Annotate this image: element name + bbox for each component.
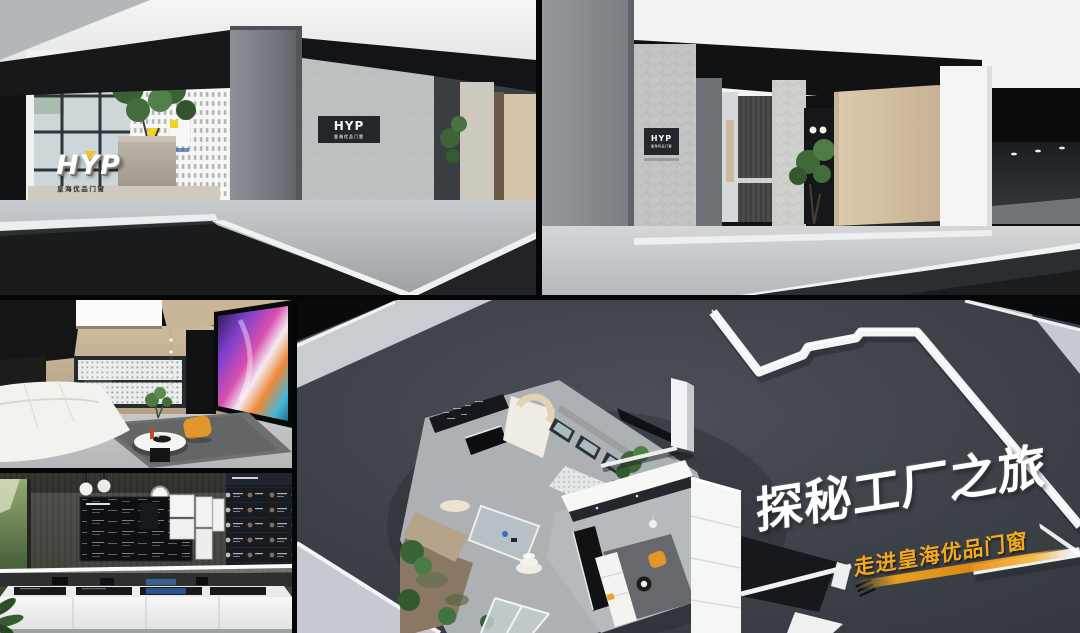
brand-logo-3d: HYP 皇海优品门窗 xyxy=(54,152,204,202)
entrance-render-right: HYP 皇海优品门窗 xyxy=(542,0,1080,295)
product-display-render xyxy=(0,473,292,633)
showroom-collage: HYP 皇海优品门窗 HYP 皇海优品门窗 xyxy=(0,0,1080,633)
brand-logo-subtext: 皇海优品门窗 xyxy=(57,183,106,193)
entrance-left-scene xyxy=(0,0,536,295)
wall-sign-left: HYP 皇海优品门窗 xyxy=(318,116,380,143)
floor-plan-render: 探秘工厂之旅 走进皇海优品门窗 xyxy=(297,300,1080,633)
product-display-scene xyxy=(0,473,292,633)
entrance-render-left: HYP 皇海优品门窗 HYP 皇海优品门窗 xyxy=(0,0,536,295)
wall-sign-right: HYP 皇海优品门窗 xyxy=(644,128,679,155)
living-room-scene xyxy=(0,300,292,468)
living-room-render xyxy=(0,300,292,468)
wall-sign-left-text: HYP xyxy=(334,120,365,132)
wall-sign-right-text: HYP xyxy=(651,135,672,143)
wall-sign-right-subtext: 皇海优品门窗 xyxy=(651,144,672,148)
wall-sign-left-subtext: 皇海优品门窗 xyxy=(334,134,364,140)
entrance-right-scene xyxy=(542,0,1080,295)
floor-plan-scene xyxy=(297,300,1080,633)
